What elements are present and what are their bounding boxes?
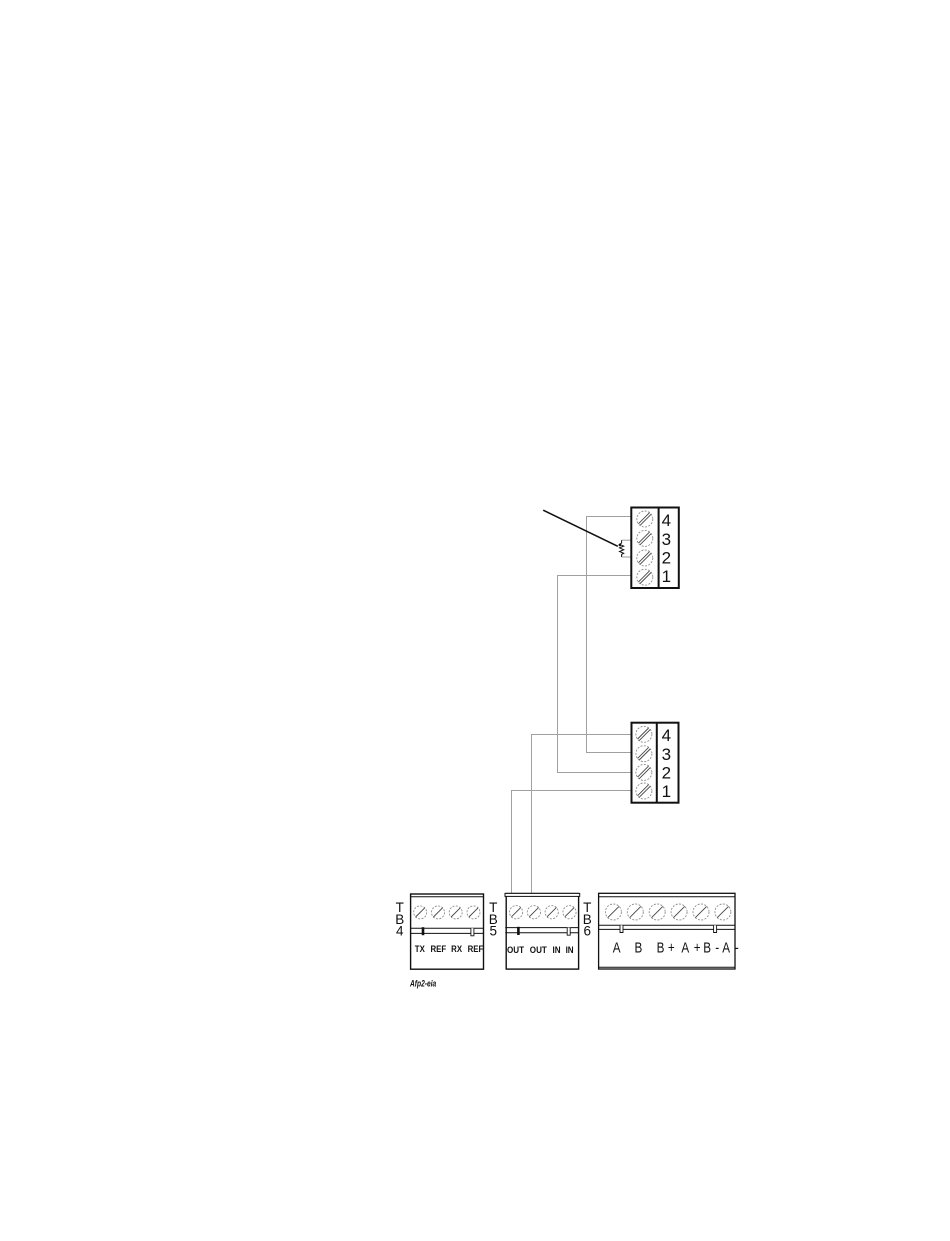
svg-text:REF: REF	[468, 944, 484, 955]
svg-text:RX: RX	[451, 944, 462, 955]
svg-text:B: B	[657, 939, 665, 956]
svg-text:-: -	[735, 939, 739, 956]
svg-text:4: 4	[662, 511, 671, 530]
svg-text:OUT: OUT	[530, 944, 548, 955]
svg-text:A: A	[613, 939, 621, 956]
svg-text:2: 2	[662, 764, 671, 783]
svg-text:A: A	[722, 939, 730, 956]
svg-text:1: 1	[662, 567, 671, 586]
svg-text:4: 4	[396, 924, 404, 939]
svg-text:REF: REF	[430, 944, 446, 955]
svg-text:3: 3	[662, 530, 671, 549]
svg-text:OUT: OUT	[507, 944, 525, 955]
svg-text:6: 6	[584, 924, 592, 939]
svg-text:-: -	[715, 939, 719, 956]
svg-text:B: B	[634, 939, 642, 956]
svg-text:B: B	[703, 939, 711, 956]
svg-text:+: +	[668, 939, 675, 956]
svg-text:TX: TX	[415, 944, 425, 955]
svg-text:+: +	[694, 939, 701, 956]
svg-text:1: 1	[662, 782, 671, 801]
svg-text:A: A	[681, 939, 689, 956]
svg-text:IN: IN	[552, 944, 560, 955]
svg-text:3: 3	[662, 745, 671, 764]
svg-text:2: 2	[662, 549, 671, 568]
svg-text:4: 4	[662, 726, 671, 745]
svg-text:Afp2-eia: Afp2-eia	[409, 979, 437, 989]
svg-text:5: 5	[490, 924, 498, 939]
svg-text:IN: IN	[566, 944, 574, 955]
